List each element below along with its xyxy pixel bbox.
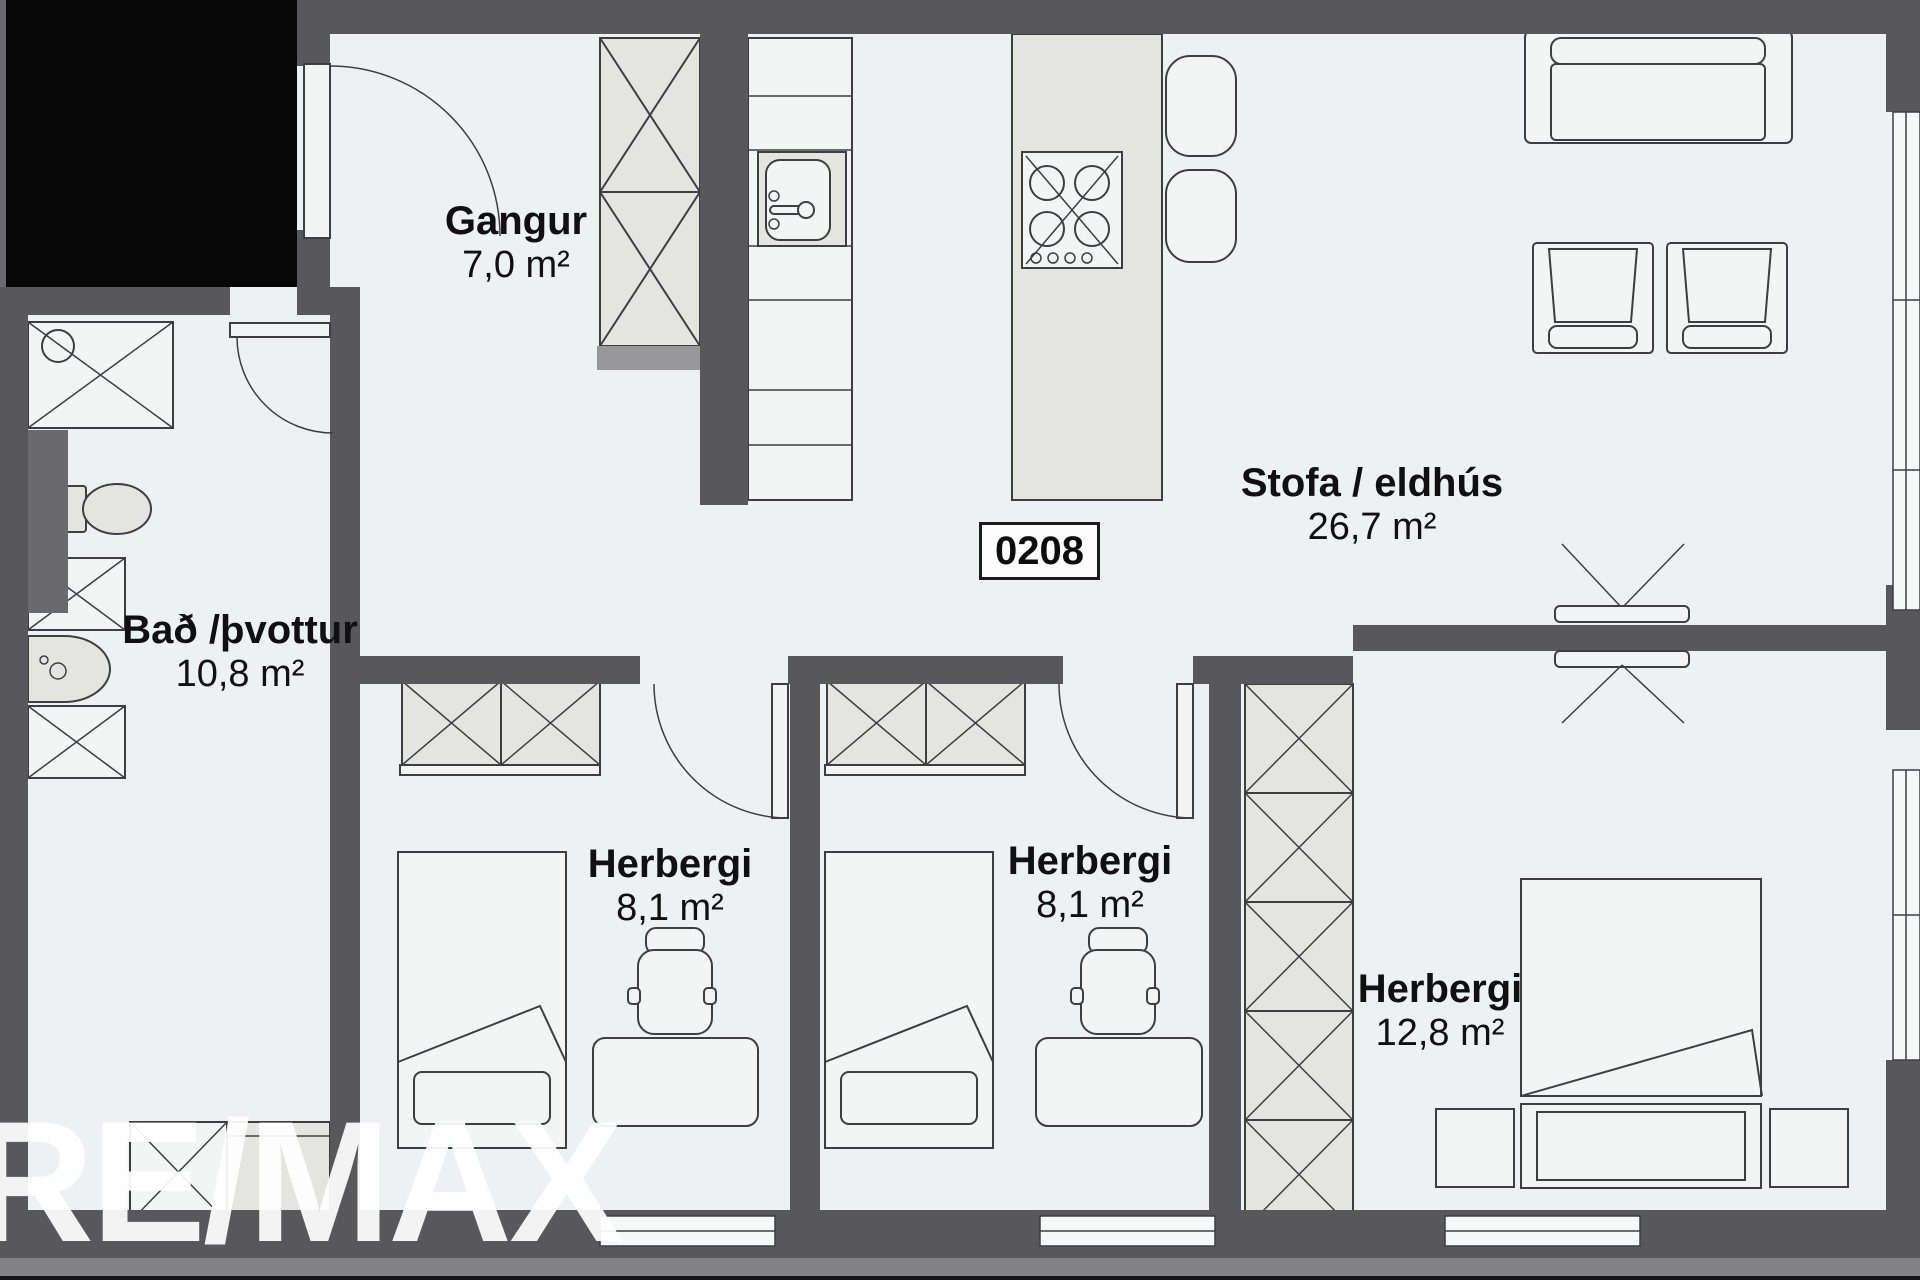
black-area-edge xyxy=(0,0,6,287)
room-label-bad-thvottur: Bað /þvottur 10,8 m² xyxy=(122,607,358,697)
room-area: 26,7 m² xyxy=(1241,506,1503,550)
room-area: 12,8 m² xyxy=(1358,1012,1523,1056)
bedroom1-wardrobe xyxy=(400,681,600,775)
laundry-cabinet xyxy=(130,1122,227,1222)
adjacent-black-area xyxy=(0,0,297,287)
toilet xyxy=(64,484,151,534)
room-name: Bað /þvottur xyxy=(122,607,358,653)
bathroom-cabinet-lower xyxy=(28,706,125,778)
room-name: Gangur xyxy=(445,198,587,244)
room-name: Stofa / eldhús xyxy=(1241,460,1503,506)
bedroom2-bed xyxy=(825,852,993,1148)
room-name: Herbergi xyxy=(1358,966,1523,1012)
room-area: 8,1 m² xyxy=(588,887,753,931)
armchair-right xyxy=(1667,243,1787,353)
kitchen-wardrobe xyxy=(597,38,701,370)
bedroom1-desk xyxy=(593,1038,758,1126)
room-area: 7,0 m² xyxy=(445,244,587,288)
window-right-upper xyxy=(1893,112,1920,610)
bedroom2-desk xyxy=(1036,1038,1202,1126)
sofa xyxy=(1525,31,1792,143)
washbasin xyxy=(28,636,110,702)
room-label-stofa-eldhus: Stofa / eldhús 26,7 m² xyxy=(1241,460,1503,550)
window-bottom-bedroom3 xyxy=(1445,1216,1640,1246)
nightstand-right xyxy=(1770,1109,1848,1187)
window-bottom-bedroom2 xyxy=(1040,1216,1215,1246)
bathroom-duct xyxy=(28,430,68,613)
floor-plan: Gangur 7,0 m² Stofa / eldhús 26,7 m² Bað… xyxy=(0,0,1920,1280)
room-area: 10,8 m² xyxy=(122,653,358,697)
window-right-lower xyxy=(1893,770,1920,1060)
window-bottom-bedroom1 xyxy=(600,1216,775,1246)
kitchen-counter xyxy=(748,38,852,500)
room-label-herbergi-1: Herbergi 8,1 m² xyxy=(588,841,753,931)
bedroom2-wardrobe xyxy=(825,681,1025,775)
room-label-herbergi-3: Herbergi 12,8 m² xyxy=(1358,966,1523,1056)
wardrobe-base xyxy=(597,346,701,370)
room-label-herbergi-2: Herbergi 8,1 m² xyxy=(1008,838,1173,928)
kitchen-sink xyxy=(758,152,846,246)
unit-number-badge: 0208 xyxy=(979,522,1100,580)
room-area: 8,1 m² xyxy=(1008,884,1173,928)
nightstand-left xyxy=(1436,1109,1514,1187)
shower xyxy=(28,322,173,428)
kitchen-island xyxy=(1012,34,1162,500)
cooktop xyxy=(1022,152,1122,268)
bedroom3-closet-column xyxy=(1245,684,1353,1229)
bedroom1-bed xyxy=(398,852,566,1148)
armchair-left xyxy=(1533,243,1653,353)
room-name: Herbergi xyxy=(1008,838,1173,884)
washing-machine xyxy=(227,1122,330,1222)
room-label-gangur: Gangur 7,0 m² xyxy=(445,198,587,288)
room-name: Herbergi xyxy=(588,841,753,887)
